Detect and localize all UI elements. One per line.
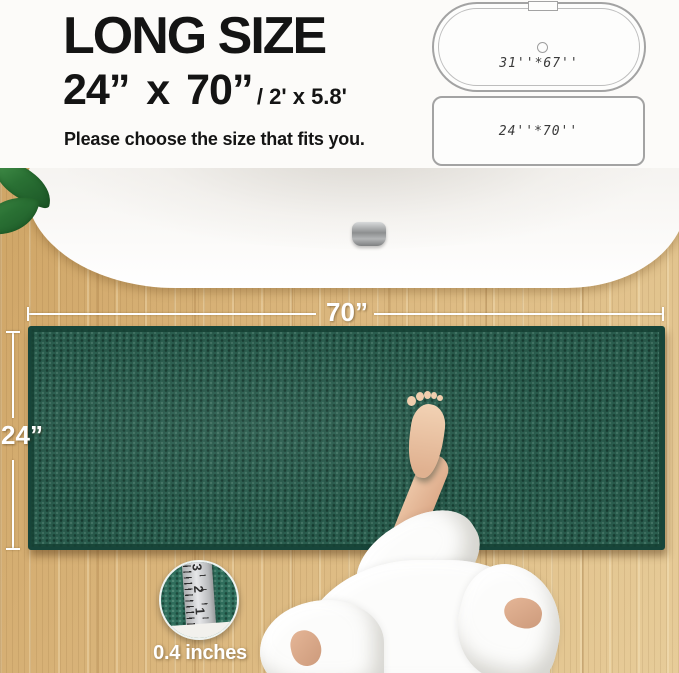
height-dimension-line [12,332,14,418]
ruler-number: 2 [191,585,207,600]
dimension-end-cap [662,307,664,321]
mat-diagram: 24''*70'' [432,96,645,166]
width-dimension-line [28,313,316,315]
tub-drain-knob [352,222,386,246]
pile-height-caption: 0.4 inches [148,642,252,665]
faucet-deck-icon [528,1,558,11]
tub-size-label: 31''*67'' [434,56,644,71]
bathrobe-sleeve [260,600,384,673]
width-dimension-line [374,313,664,315]
mat-size-label: 24''*70'' [434,124,643,139]
ruler-number: 1 [192,607,208,622]
height-dimension-label: 24” [0,420,44,451]
subtitle: Please choose the size that fits you. [64,129,365,150]
person-toe [437,395,443,401]
ruler-number: 3 [189,563,205,578]
headline: LONG SIZE [63,10,325,62]
ruler-icon: 3 2 1 [182,560,217,632]
size-alt-label: / 2' x 5.8' [257,84,347,109]
pile-height-inset: 3 2 1 [159,560,239,640]
bath-rug [28,326,665,550]
size-line: 24” x 70” / 2' x 5.8' [63,66,347,115]
size-main-label: 24” x 70” [63,66,252,114]
dimension-end-cap [6,331,20,333]
product-hero-image: LONG SIZE 24” x 70” / 2' x 5.8' Please c… [0,0,679,673]
photo-scene: 70” 24” 3 2 1 0. [0,168,679,673]
inset-floor [159,621,239,640]
person-toe [407,396,416,406]
drain-icon [537,42,548,53]
width-dimension-label: 70” [317,297,377,328]
dimension-end-cap [6,548,20,550]
height-dimension-line [12,460,14,549]
header-band: LONG SIZE 24” x 70” / 2' x 5.8' Please c… [0,0,679,168]
person-toe [424,391,431,399]
bathtub-topview-diagram: 31''*67'' [432,2,646,92]
dimension-end-cap [27,307,29,321]
person-toe [416,392,424,401]
